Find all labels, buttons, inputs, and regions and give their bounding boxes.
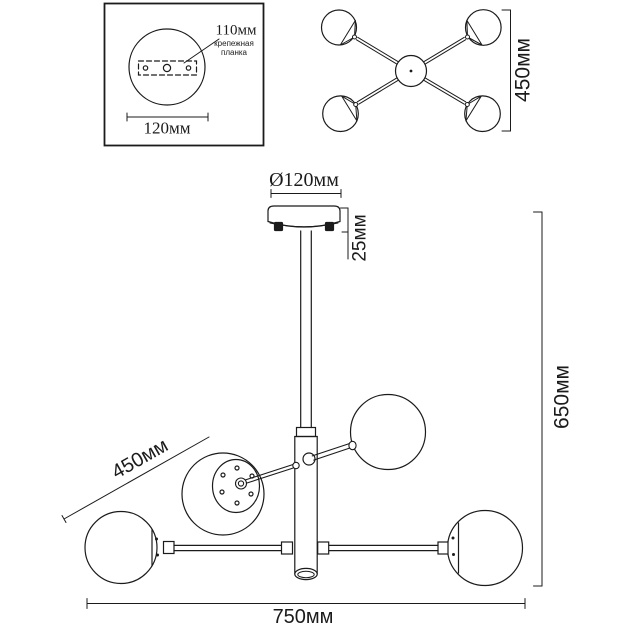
canopy-outline-circle <box>129 29 205 105</box>
canopy-nut-right <box>326 223 334 231</box>
central-body <box>295 428 317 580</box>
label-total-height: 650мм <box>552 365 573 429</box>
socket-nut-outer <box>236 478 247 489</box>
lower-arm-clamp-right <box>318 542 329 554</box>
front-shade-lower-left <box>85 512 157 584</box>
top-view <box>322 10 511 132</box>
screw-dot <box>452 537 455 540</box>
label-canopy-height: 25мм <box>351 214 370 261</box>
down-rod <box>301 231 312 428</box>
screw-dot <box>155 538 158 541</box>
label-plate-hole-spacing: 110мм <box>216 24 257 39</box>
label-canopy-diameter: Ø120мм <box>269 170 339 190</box>
line-drawing <box>0 0 630 630</box>
dimension-total-height <box>534 212 543 586</box>
screw-dot <box>156 554 159 557</box>
lower-arm-clamp-left <box>282 542 293 554</box>
label-mounting-bracket-line1: крепежная <box>214 39 254 48</box>
body-collar <box>297 428 316 437</box>
upper-right-arm <box>312 441 356 460</box>
front-view <box>85 206 523 586</box>
dimension-top-view-span <box>502 10 511 131</box>
bracket-hole-left <box>143 66 147 70</box>
label-total-width: 750мм <box>273 607 334 627</box>
upper-arm-joint <box>303 453 315 465</box>
label-mounting-bracket-line2: планка <box>214 48 254 57</box>
label-mounting-bracket: крепежная планка <box>214 39 254 57</box>
dimension-canopy-height <box>341 208 349 259</box>
front-shade-upper-right <box>351 395 426 470</box>
bracket-hole-center <box>163 64 170 71</box>
upper-right-connector <box>349 441 356 449</box>
lower-left-socket-block <box>164 542 175 554</box>
screw-dot <box>452 553 455 556</box>
hub-center-dot <box>410 70 413 73</box>
label-plate-diameter: 120мм <box>143 120 190 137</box>
lower-right-socket-block <box>438 542 448 554</box>
bracket-hole-right <box>186 66 190 70</box>
chandelier-dimension-diagram: 110мм крепежная планка 120мм 450мм Ø120м… <box>0 0 630 630</box>
upper-left-arm-tip <box>293 462 299 468</box>
ceiling-canopy <box>268 206 340 231</box>
canopy-nut-left <box>275 223 283 231</box>
label-top-view-span: 450мм <box>513 38 534 102</box>
front-shade-upper-left <box>182 453 264 535</box>
